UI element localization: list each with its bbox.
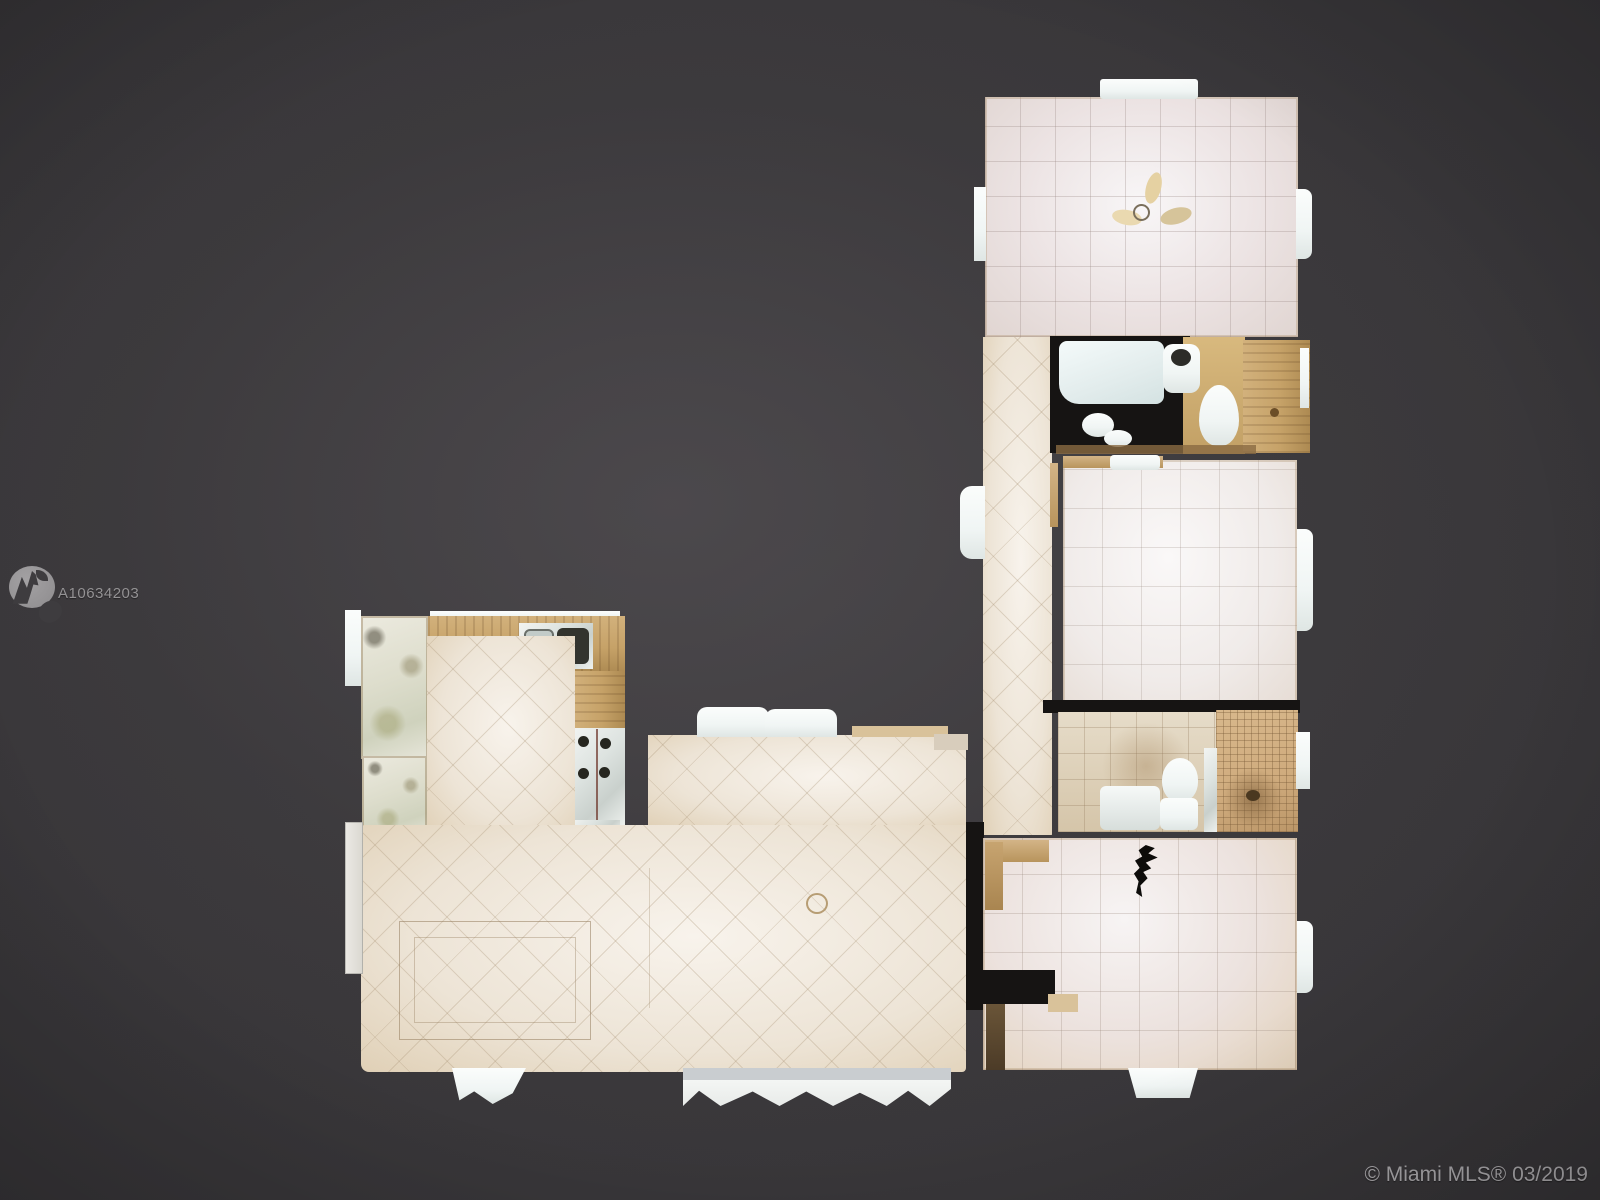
stove-divider (596, 729, 598, 826)
kitchen-fridge (361, 616, 428, 759)
bedroom-bottom-wardrobe (986, 1004, 1005, 1070)
bathroom-top-vanity-edge (1300, 348, 1309, 408)
shower-drain (1246, 790, 1260, 801)
stove-burner (578, 768, 589, 779)
bathtub (1059, 341, 1164, 404)
ceiling-fan-hub (1133, 204, 1150, 221)
floor-plan (0, 0, 1600, 1200)
wall-living-bedroom (966, 822, 984, 1010)
copyright-text: © Miami MLS® 03/2019 (1364, 1163, 1588, 1187)
listing-id: A10634203 (58, 585, 139, 602)
patio-door-left (345, 822, 363, 974)
bedroom-top-window-left (974, 187, 986, 261)
stove-burner (578, 736, 589, 747)
patio-door-bottom-small (452, 1068, 526, 1104)
living-top-wall-piece (934, 734, 968, 750)
bedroom-middle-curtain (1110, 455, 1160, 470)
floor-ring-mark (806, 893, 828, 914)
shower (1216, 710, 1298, 832)
bedroom-top-window-right (1296, 189, 1312, 259)
living-room-floor-upper (648, 735, 966, 827)
toilet (1162, 758, 1198, 802)
hallway-door-trim (1050, 463, 1058, 527)
bathroom-middle-sink (1100, 786, 1160, 830)
mountain-hook-shape (36, 570, 48, 581)
bedroom-middle (1063, 460, 1297, 704)
bathroom-middle-window (1296, 732, 1310, 789)
bedroom-bottom-wardrobe-top (985, 842, 1003, 910)
toilet-bowl (1171, 349, 1191, 366)
balcony-curtain (683, 1068, 951, 1106)
bidet (1199, 385, 1239, 446)
bedroom-bottom-bench (1048, 994, 1078, 1012)
sofa-back (697, 707, 769, 737)
bedroom-bottom-closet-wall (983, 970, 1055, 1004)
vanity-knob (1270, 408, 1279, 417)
bedroom-bottom-door (1128, 1068, 1198, 1098)
kitchen-floor (427, 636, 575, 836)
rug-outline-inner (414, 937, 576, 1023)
bathroom-top-wall-trim (1056, 445, 1256, 454)
screenshot-root: A10634203 © Miami MLS® 03/2019 (0, 0, 1600, 1200)
hallway (983, 337, 1052, 835)
sofa-back (765, 709, 837, 737)
floor-seam (649, 868, 650, 1008)
toilet-tank (1160, 798, 1198, 830)
kitchen-counter-right (573, 671, 625, 731)
stove-burner (599, 767, 610, 778)
bedroom-middle-window-right (1297, 529, 1313, 631)
stove-burner (600, 738, 611, 749)
shower-glass (1204, 748, 1217, 832)
mountain-logo-icon (9, 566, 55, 608)
bedroom-top-window-top (1100, 79, 1198, 99)
kitchen-window-left (345, 610, 361, 686)
hallway-door-leaf (960, 486, 985, 559)
bedroom-bottom-window-right (1297, 921, 1313, 993)
